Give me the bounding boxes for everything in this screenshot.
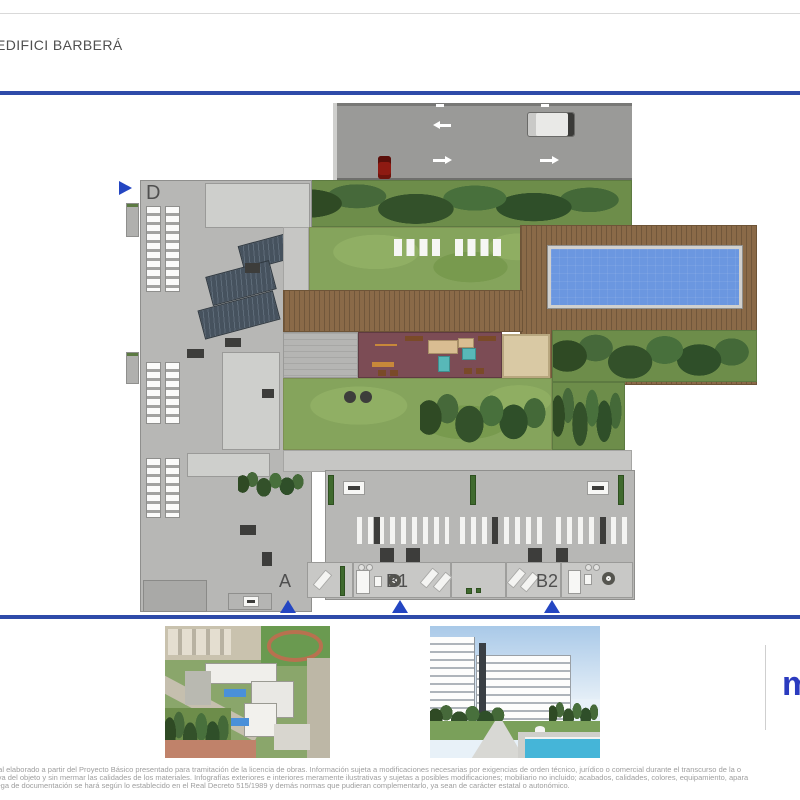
skylight-unit [343,481,365,495]
bench [478,336,496,341]
terrace-pot [358,564,365,571]
play-structure [458,338,474,348]
deck-walkway [283,290,523,332]
terrace-divider [352,562,354,598]
terrace-table [374,576,382,587]
dark-vent [600,517,606,544]
dark-vent [492,517,498,544]
play-box [390,370,398,376]
round-planter [360,391,372,403]
terrace-pot [593,564,600,571]
building-d-rooflight-top [205,183,310,228]
building-d-rooflight-mid [222,352,280,450]
facade-photo [430,626,600,758]
terrace-divider [560,562,562,598]
red-car [378,156,391,179]
roof-unit [262,389,274,398]
garden-east [552,330,757,382]
vertical-divider [765,645,766,730]
roof-unit [187,349,204,358]
photo-parasol [535,726,545,732]
top-rule [0,13,800,14]
bench [405,336,423,341]
roof-unit [240,525,256,535]
paved-area [283,332,358,378]
terrace-plant [476,588,481,593]
play-box [476,368,484,374]
terrace-table [584,574,592,585]
hedge-strip-top [283,180,632,227]
plan-sheet: EDIFICI BARBERÁ [0,0,800,800]
legal-text-line-3: rega de documentación se hará según lo e… [0,782,570,790]
dark-vent [374,517,380,544]
terrace-divider [505,562,507,598]
roof-vents [165,458,180,518]
garden-east-lower [552,382,625,450]
garden-trees [420,390,550,445]
aerial-pool [224,689,245,697]
balcony [126,203,139,237]
play-slide [462,348,476,360]
terrace-hedge [340,566,345,596]
play-box [464,368,472,374]
white-van [527,112,575,137]
header-divider-line [0,91,800,95]
brand-logo-mark: m [782,665,800,704]
skylight-unit [587,481,609,495]
building-d-annex [143,580,207,612]
lane-mark [541,104,549,107]
sun-loungers [455,239,503,256]
sand-pit [502,334,550,378]
photo-pool [525,737,600,758]
play-structure [428,340,458,354]
aerial-rooftops [165,740,256,758]
roof-vent-bars [460,517,542,544]
access-arrow-b2 [544,600,560,613]
aerial-building-grey [185,671,211,705]
roof-unit [262,552,272,566]
courtyard-trees [238,470,306,498]
roof-vent-bars [556,517,630,544]
terrace-cabinet [568,570,581,594]
aerial-road-right [307,658,330,758]
block-label-b2: B2 [536,571,558,592]
roof-vents [146,458,161,518]
access-arrow-a [280,600,296,613]
terrace-plant [466,588,472,594]
terrace-unit [243,596,259,607]
footer-divider-line [0,615,800,619]
lane-mark [436,104,444,107]
roof-hedge [328,475,334,505]
terrace-cabinet [356,570,370,594]
play-box [378,370,386,376]
block-label-a: A [279,571,291,592]
roof-vents [165,206,180,292]
roof-vent-bars [357,517,449,544]
terrace-pot [585,564,592,571]
round-planter [344,391,356,403]
balcony [126,352,139,384]
roof-hedge [470,475,476,505]
roof-vents [165,362,180,424]
round-table [602,572,615,585]
access-arrow-d [119,181,132,195]
roof-lawn [309,227,547,292]
aerial-building-low [274,724,310,750]
roof-unit [225,338,241,347]
access-arrow-b1 [392,600,408,613]
terrace-pot [366,564,373,571]
terrace-divider [450,562,452,598]
trapeze-bar [375,344,397,346]
play-slide [438,356,450,372]
roof-vents [146,362,161,424]
block-label-b1: B1 [386,571,408,592]
aerial-city-blocks [168,629,231,655]
balance-beam [372,362,394,367]
page-title: EDIFICI BARBERÁ [0,37,123,53]
aerial-pool [231,718,249,726]
block-label-d: D [146,182,160,205]
roof-unit [245,263,260,273]
aerial-photo [165,626,330,758]
roof-vents [146,206,161,292]
south-path [283,450,632,472]
swimming-pool [548,246,742,308]
roof-hedge [618,475,624,505]
sun-loungers [394,239,442,256]
